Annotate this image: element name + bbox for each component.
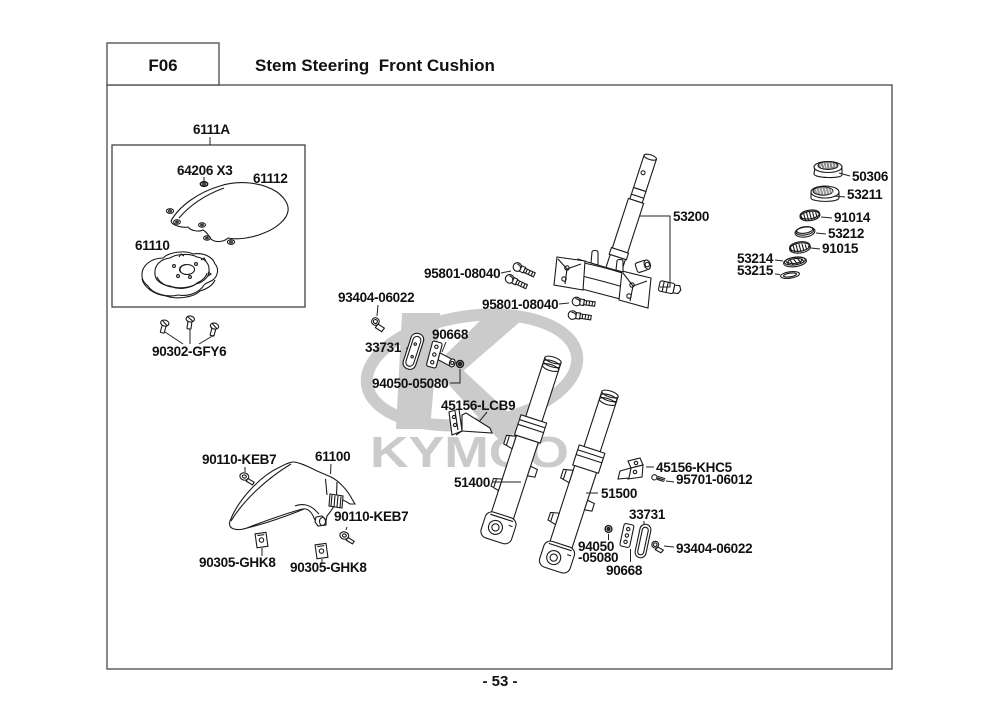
svg-text:53200: 53200 [673,209,709,224]
svg-text:90668: 90668 [606,563,643,578]
svg-text:90305-GHK8: 90305-GHK8 [290,560,367,575]
svg-text:90110-KEB7: 90110-KEB7 [202,452,276,467]
svg-text:93404-06022: 93404-06022 [338,290,414,305]
svg-text:90668: 90668 [432,327,469,342]
svg-text:90302-GFY6: 90302-GFY6 [152,344,227,359]
svg-text:Stem Steering Front Cushion: Stem Steering Front Cushion [255,56,495,75]
svg-text:50306: 50306 [852,169,889,184]
svg-text:53215: 53215 [737,263,774,278]
svg-text:61112: 61112 [253,171,288,186]
svg-text:93404-06022: 93404-06022 [676,541,752,556]
svg-text:53211: 53211 [847,187,883,202]
svg-text:51500: 51500 [601,486,637,501]
svg-text:61100: 61100 [315,449,350,464]
svg-text:- 53 -: - 53 - [482,673,517,690]
svg-text:95801-08040: 95801-08040 [424,266,500,281]
svg-text:91014: 91014 [834,210,871,225]
svg-text:51400: 51400 [454,475,490,490]
svg-text:61110: 61110 [135,238,170,253]
svg-text:53212: 53212 [828,226,864,241]
svg-text:33731: 33731 [629,507,666,522]
svg-text:95701-06012: 95701-06012 [676,472,752,487]
svg-text:94050-05080: 94050-05080 [372,376,448,391]
svg-text:90305-GHK8: 90305-GHK8 [199,555,276,570]
svg-text:64206 X3: 64206 X3 [177,163,233,178]
svg-text:F06: F06 [148,56,177,75]
svg-text:91015: 91015 [822,241,859,256]
svg-text:6111A: 6111A [193,122,230,137]
svg-text:90110-KEB7: 90110-KEB7 [334,509,408,524]
svg-text:95801-08040: 95801-08040 [482,297,558,312]
svg-text:33731: 33731 [365,340,402,355]
